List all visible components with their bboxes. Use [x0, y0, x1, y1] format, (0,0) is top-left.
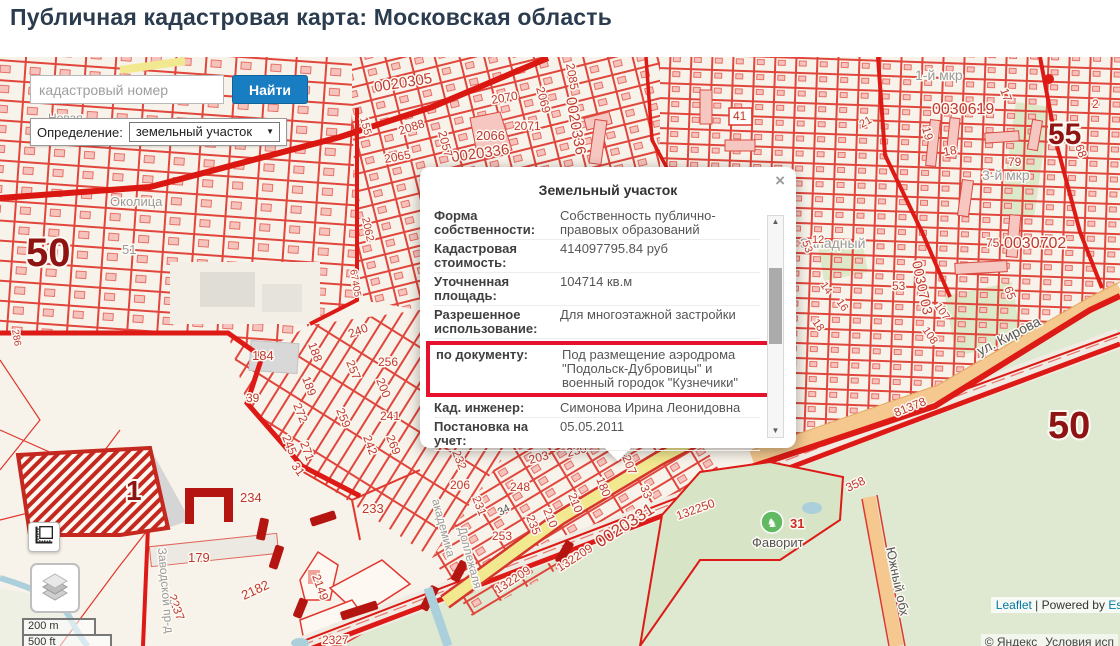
field-value: 414097795.84 руб	[550, 242, 668, 270]
map-label: 234	[240, 490, 262, 505]
field-label: Постановка на учет:	[434, 420, 550, 448]
page: { "page": { "title": "Публичная кадастро…	[0, 0, 1120, 646]
scroll-up-icon[interactable]: ▲	[768, 216, 783, 228]
popup-row: Форма собственности:Собственность публич…	[434, 207, 760, 240]
parcel-popup: Земельный участок × Форма собственности:…	[420, 167, 796, 448]
popup-row: по документу:Под размещение аэродрома "П…	[426, 341, 778, 397]
field-value: Под размещение аэродрома "Подольск-Дубро…	[552, 348, 766, 390]
popup-row: Кад. инженер:Симонова Ирина Леонидовна	[434, 399, 760, 418]
map-label: 2	[1092, 97, 1099, 111]
map-label: 39	[246, 391, 260, 405]
scroll-down-icon[interactable]: ▼	[768, 425, 783, 437]
esri-link[interactable]: Esri	[1108, 598, 1120, 612]
map-label: 2071	[514, 119, 541, 133]
scale-metric: 200 m	[22, 618, 96, 634]
popup-row: Постановка на учет:05.05.2011	[434, 418, 760, 451]
map-label: 1	[126, 475, 142, 506]
search-button[interactable]: Найти	[232, 75, 308, 104]
yandex-terms-link[interactable]: Условия исп	[1045, 635, 1114, 646]
map-label: 2327	[322, 633, 349, 646]
search-input[interactable]	[30, 75, 224, 104]
map-label: 248	[510, 480, 530, 494]
chevron-down-icon: ▼	[266, 127, 274, 136]
close-icon[interactable]: ×	[775, 172, 785, 189]
field-value: 104714 кв.м	[550, 275, 632, 303]
map-label: 75	[986, 236, 1000, 250]
field-label: Уточненная площадь:	[434, 275, 550, 303]
map-label: 50	[26, 231, 71, 275]
popup-title: Земельный участок	[420, 167, 796, 198]
popup-rows: Форма собственности:Собственность публич…	[434, 207, 760, 444]
map-label: 12	[812, 234, 824, 246]
map-label: 50	[1048, 405, 1090, 447]
measure-button[interactable]	[28, 522, 60, 552]
map-label: 206	[450, 478, 470, 492]
map-label: 179	[188, 550, 210, 565]
map-label: 256	[378, 355, 398, 369]
field-label: по документу:	[436, 348, 552, 390]
map-label: 0030619	[932, 101, 994, 118]
yandex-copyright: © Яндекс	[985, 635, 1038, 646]
attribution-separator: | Powered by	[1032, 598, 1109, 612]
popup-row: Уточненная площадь:104714 кв.м	[434, 273, 760, 306]
map-label: 0030702	[1004, 235, 1066, 252]
definition-label: Определение:	[37, 125, 123, 140]
map-label: 18	[942, 143, 958, 159]
scroll-thumb[interactable]	[769, 268, 782, 344]
field-label: Кад. инженер:	[434, 401, 550, 415]
search-bar: Найти	[30, 75, 308, 104]
map-label: 2066	[476, 128, 505, 143]
map-label: 3-й мкр	[982, 167, 1030, 183]
map-label: 241	[380, 409, 400, 423]
field-value: 05.05.2011	[550, 420, 624, 448]
definition-select[interactable]: земельный участок ▼	[129, 122, 280, 142]
map-label: 53	[892, 279, 906, 293]
definition-value: земельный участок	[136, 124, 252, 139]
field-label: Разрешенное использование:	[434, 308, 550, 336]
scale-control: 200 m 500 ft	[22, 618, 112, 646]
scale-imperial: 500 ft	[22, 634, 112, 646]
map-label: 233	[362, 501, 384, 516]
layers-button[interactable]	[30, 563, 80, 613]
popup-row: Кадастровая стоимость:414097795.84 руб	[434, 240, 760, 273]
yandex-attribution: © ЯндексУсловия исп	[981, 634, 1118, 646]
map[interactable]: ♞ 00203050020336002033620702069208520712…	[0, 57, 1120, 646]
map-label: 184	[252, 348, 274, 363]
map-label: 51	[122, 242, 136, 257]
field-value: Для многоэтажной застройки	[550, 308, 736, 336]
map-label: 1-й мкр	[915, 67, 963, 83]
attribution: Leaflet | Powered by Esri	[991, 597, 1120, 613]
popup-row: Разрешенное использование:Для многоэтажн…	[434, 306, 760, 339]
page-title: Публичная кадастровая карта: Московская …	[10, 4, 612, 31]
field-label: Форма собственности:	[434, 209, 550, 237]
map-label: Околица	[110, 194, 163, 209]
field-label: Кадастровая стоимость:	[434, 242, 550, 270]
field-value: Симонова Ирина Леонидовна	[550, 401, 740, 415]
definition-filter: Определение: земельный участок ▼	[30, 118, 287, 146]
map-label: Фаворит	[752, 535, 804, 550]
map-label: 41	[733, 109, 747, 123]
svg-text:♞: ♞	[767, 516, 778, 530]
leaflet-link[interactable]: Leaflet	[996, 598, 1032, 612]
field-value: Собственность публично-правовых образова…	[550, 209, 760, 237]
layers-icon	[40, 571, 70, 606]
favorit-poi-icon: ♞	[761, 511, 783, 533]
ruler-icon	[33, 525, 55, 550]
map-label: 31	[790, 516, 804, 531]
popup-scrollbar[interactable]: ▲ ▼	[767, 215, 784, 438]
map-label: 253	[492, 529, 512, 543]
